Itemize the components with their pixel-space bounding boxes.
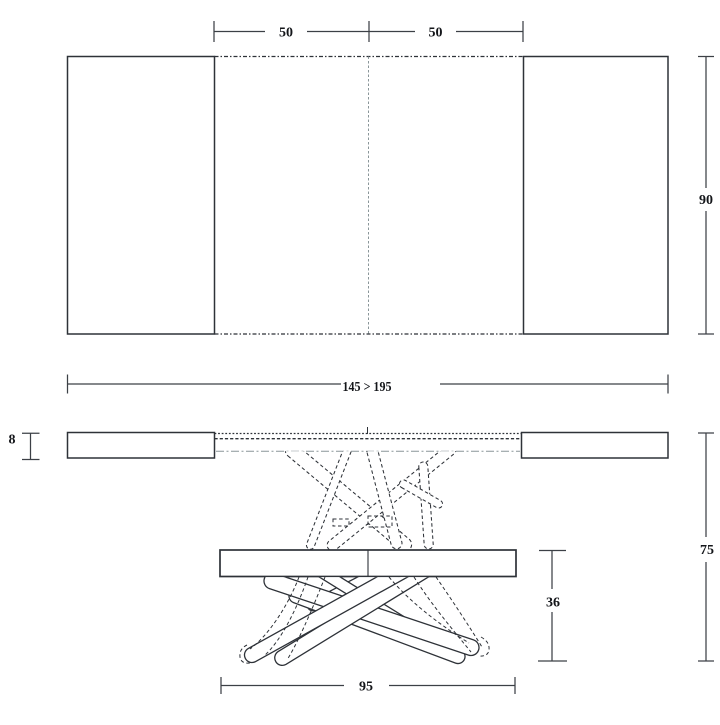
svg-text:90: 90 <box>699 193 713 208</box>
svg-text:50: 50 <box>279 26 293 41</box>
svg-text:95: 95 <box>359 680 373 695</box>
svg-text:36: 36 <box>546 596 560 611</box>
svg-text:75: 75 <box>700 543 714 558</box>
svg-text:8: 8 <box>9 433 16 448</box>
svg-text:145 > 195: 145 > 195 <box>343 380 392 395</box>
svg-text:50: 50 <box>429 26 443 41</box>
